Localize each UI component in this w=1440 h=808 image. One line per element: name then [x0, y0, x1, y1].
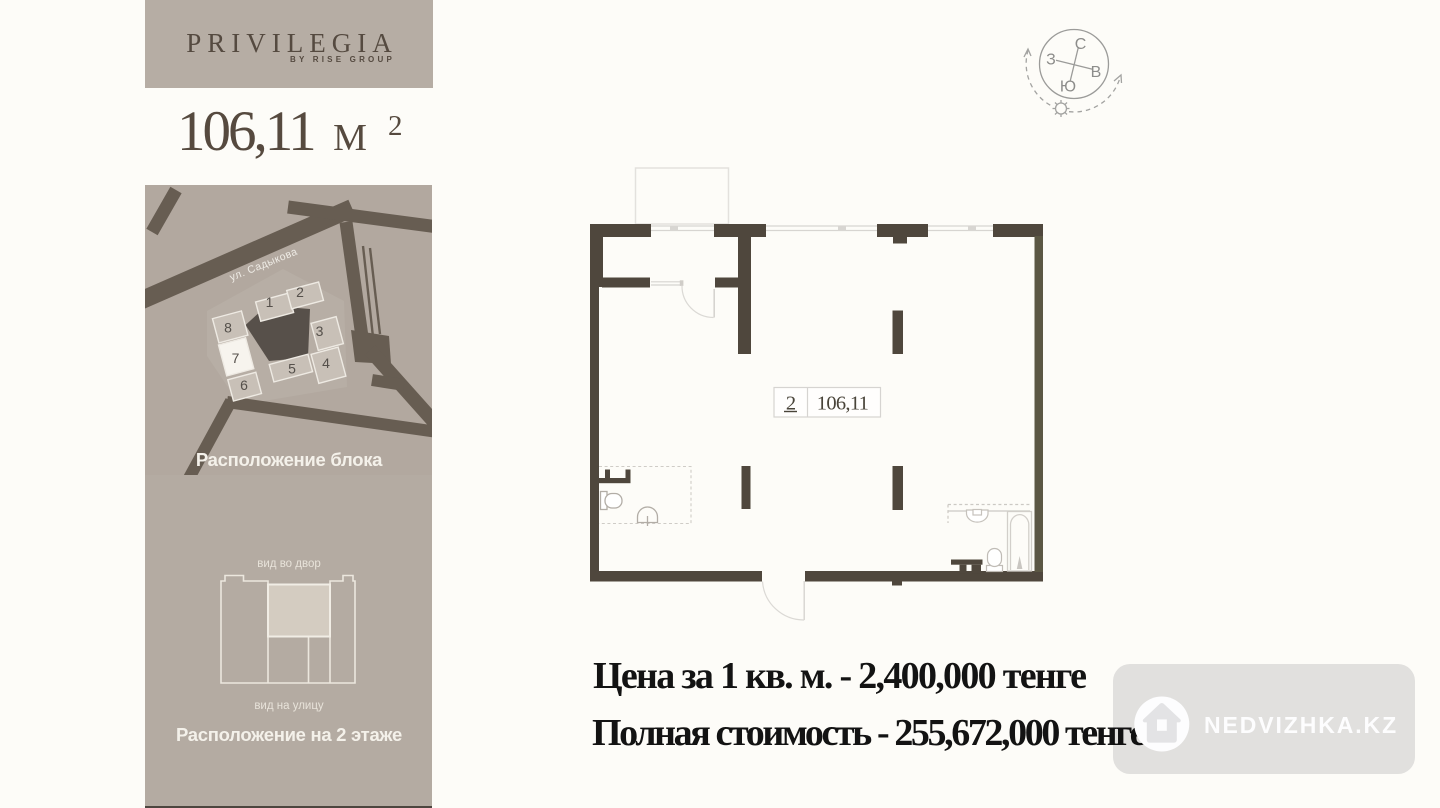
svg-text:1: 1 [266, 294, 274, 310]
svg-text:106,11: 106,11 [817, 393, 869, 415]
svg-text:В: В [1091, 64, 1102, 81]
svg-text:3: 3 [316, 323, 324, 339]
svg-text:2: 2 [296, 284, 304, 300]
svg-text:4: 4 [322, 355, 330, 371]
svg-text:8: 8 [224, 320, 232, 336]
svg-text:Ю: Ю [1060, 79, 1076, 96]
svg-text:Расположение блока: Расположение блока [196, 449, 383, 470]
svg-text:5: 5 [288, 361, 296, 377]
svg-text:вид во двор: вид во двор [257, 558, 321, 570]
svg-text:7: 7 [232, 350, 240, 366]
svg-text:NEDVIZHKA.KZ: NEDVIZHKA.KZ [1204, 712, 1398, 738]
svg-text:З: З [1046, 52, 1056, 69]
svg-text:Расположение на 2 этаже: Расположение на 2 этаже [176, 724, 402, 745]
svg-text:С: С [1075, 36, 1087, 53]
svg-text:6: 6 [240, 377, 248, 393]
svg-text:вид на улицу: вид на улицу [254, 700, 324, 712]
